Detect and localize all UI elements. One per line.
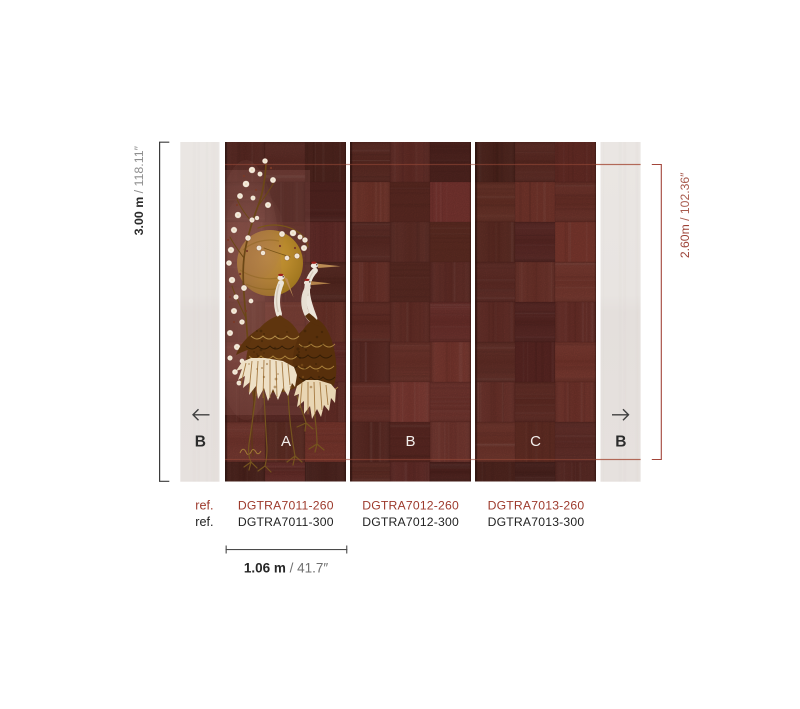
svg-text:DGTRA7011-260: DGTRA7011-260 bbox=[238, 498, 334, 512]
svg-text:3.00 m / 118.11″: 3.00 m / 118.11″ bbox=[132, 145, 146, 235]
svg-text:B: B bbox=[405, 433, 415, 450]
svg-text:C: C bbox=[530, 433, 541, 450]
svg-text:DGTRA7012-300: DGTRA7012-300 bbox=[362, 515, 459, 529]
svg-text:ref.: ref. bbox=[195, 515, 213, 529]
svg-text:B: B bbox=[195, 433, 206, 450]
svg-text:DGTRA7013-300: DGTRA7013-300 bbox=[488, 515, 585, 529]
svg-text:2.60m / 102.36″: 2.60m / 102.36″ bbox=[678, 172, 692, 258]
svg-text:A: A bbox=[281, 433, 291, 450]
svg-text:B: B bbox=[615, 433, 626, 450]
svg-text:DGTRA7011-300: DGTRA7011-300 bbox=[238, 515, 334, 529]
svg-text:1.06 m / 41.7″: 1.06 m / 41.7″ bbox=[244, 561, 329, 576]
svg-text:DGTRA7013-260: DGTRA7013-260 bbox=[488, 498, 585, 512]
svg-text:ref.: ref. bbox=[195, 498, 213, 512]
svg-text:DGTRA7012-260: DGTRA7012-260 bbox=[362, 498, 459, 512]
